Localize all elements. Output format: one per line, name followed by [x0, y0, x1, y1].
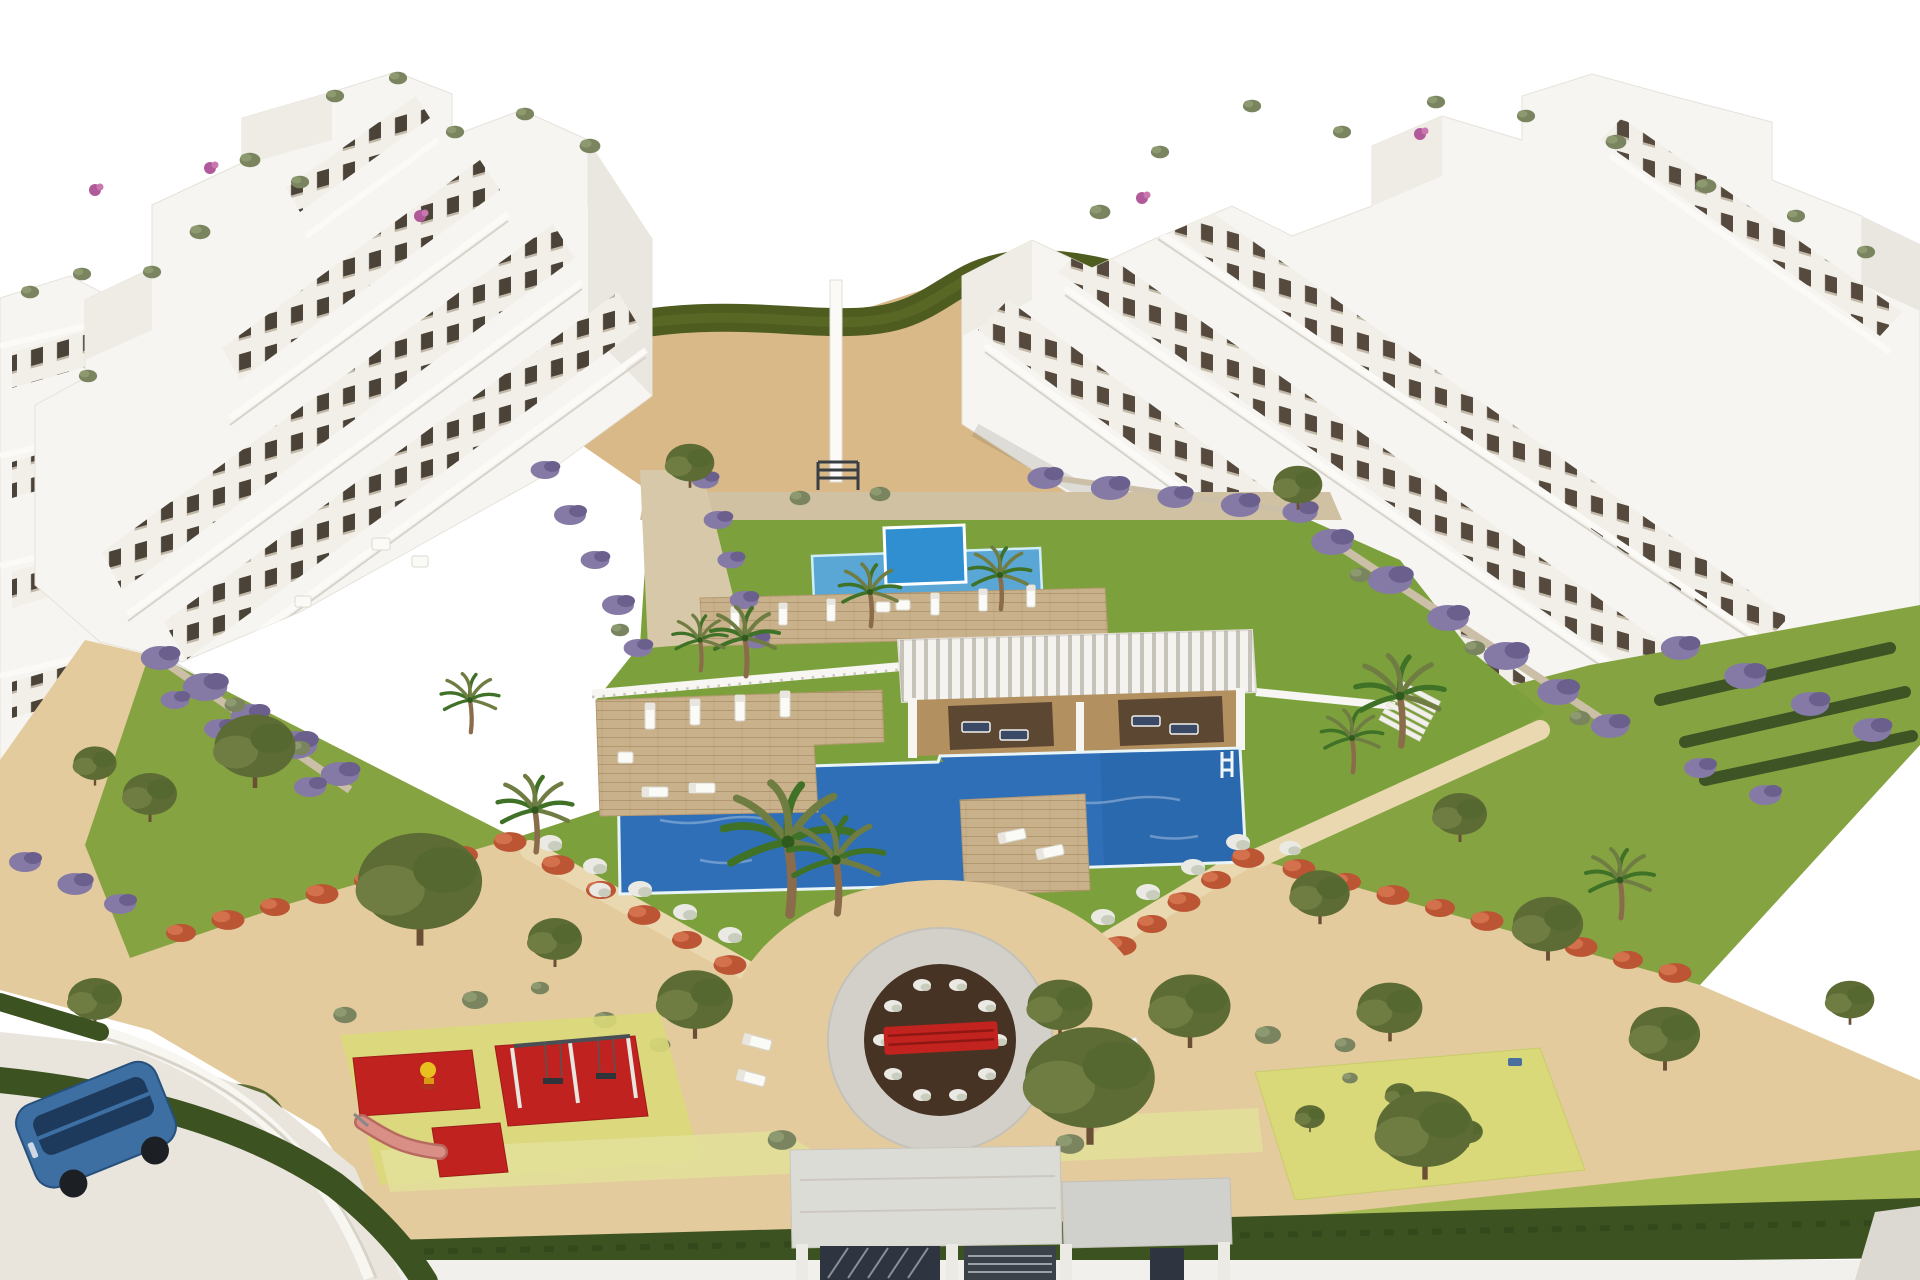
pergola-roof-slats [898, 630, 1256, 702]
architectural-render: Aerial 3D architectural rendering of a w… [0, 0, 1920, 1280]
exercise-bench [1508, 1058, 1522, 1066]
kids-pool-plunge [884, 525, 966, 585]
entrance-canopy [790, 1146, 1062, 1248]
pool-deep-tint [1100, 748, 1246, 866]
entrance-canopy-wing [1062, 1178, 1232, 1248]
rooftop-plant [21, 286, 39, 299]
render-canvas: Aerial 3D architectural rendering of a w… [0, 0, 1920, 1280]
plaza-red-bench [883, 1021, 998, 1055]
gate-pillar [830, 280, 842, 482]
entrance-bush [768, 1130, 797, 1150]
entrance-side-panel [1150, 1248, 1184, 1280]
entrance-gate-left [820, 1246, 940, 1280]
red-mat-spring-rider [353, 1050, 480, 1116]
entrance-gate-right [964, 1246, 1056, 1280]
lower-deck-plank-lines [960, 794, 1090, 896]
pool-deck-lower [960, 794, 1090, 896]
rooftop-plant [73, 268, 91, 281]
pergola [898, 630, 1256, 758]
